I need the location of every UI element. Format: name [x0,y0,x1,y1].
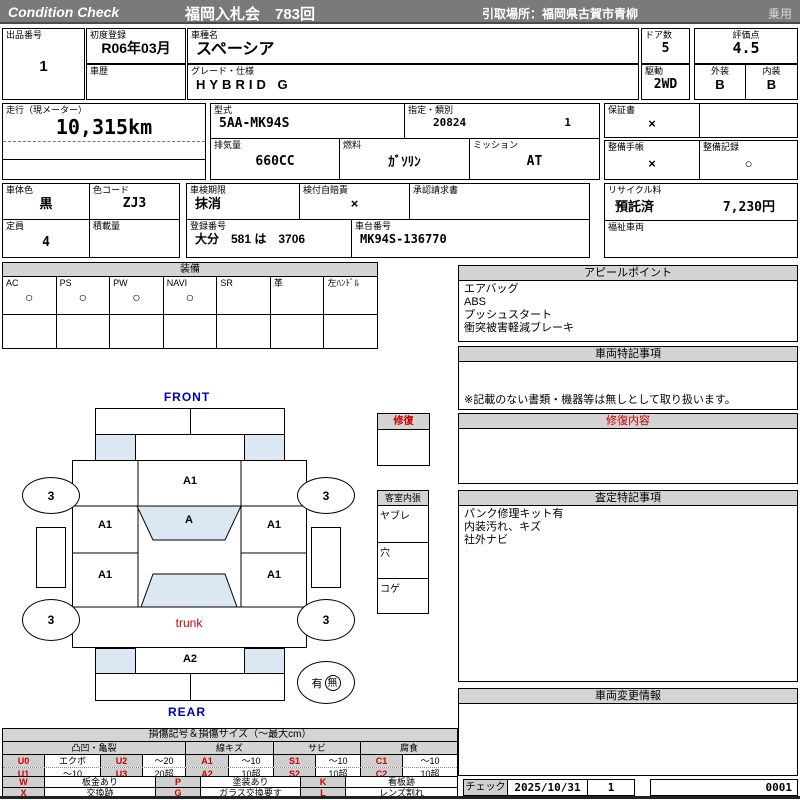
trunk-label: trunk [176,616,203,630]
capacity-label: 定員 [3,220,89,232]
appeal-line: エアバッグ [464,283,792,296]
equipment-table: 装備 AC ○ PS ○ PW ○ NAVI ○ SR 革 [2,262,378,349]
warranty-cell: 保証書 × [604,103,700,138]
exterior-grade-cell: 外装 B [694,64,746,100]
repair-content-panel: 修復内容 [458,413,798,484]
equipment-mark-navi: ○ [164,289,217,305]
chassis-number-value: MK94S-136770 [352,232,589,247]
grade-cell: グレード・仕様 HYBRID G [187,64,639,100]
rear-label: REAR [168,705,206,719]
vehicle-special-notes-title: 車両特記事項 [459,347,797,362]
score-value: 4.5 [695,41,797,56]
serial-number-cell: 0001 [650,779,798,796]
legend-desc: 看板跡 [346,777,457,787]
rear-right-wheel-mark: 3 [297,599,355,641]
equipment-cell-lhd: 左ﾊﾝﾄﾞﾙ [324,277,377,314]
appeal-line: プッシュスタート [464,309,792,322]
chassis-number-label: 車台番号 [352,220,589,232]
doors-cell: ドア数 5 [641,28,690,64]
capacity-value: 4 [3,235,89,250]
mileage-empty-row [3,142,205,160]
model-code-cell: 型式 5AA-MK94S [210,103,405,139]
front-label: FRONT [164,390,210,404]
legend-group-rust: サビ [274,742,361,754]
interior-row-tear: ヤブレ [378,506,428,542]
equipment-label-ps: PS [57,277,110,289]
rear-left-wheel-mark: 3 [22,599,80,641]
inspection-label: 車検期限 [187,184,299,196]
legend-desc: 塗装あり [201,777,301,787]
fuel-label: 燃料 [340,139,469,151]
car-body-outline: A1 A A1 A1 A1 A1 trunk [72,460,307,648]
vehicle-class: 乗用 [768,5,792,22]
maintenance-record-label: 整備記録 [700,141,797,153]
lot-number-value: 1 [3,59,84,74]
roof-mark: A [185,514,193,526]
legend-code: S1 [274,755,316,767]
class-number-cell: 指定・類別 20824 1 [404,103,600,139]
assessment-notes-content: パンク修理キット有 内装汚れ、キズ 社外ナビ [459,506,797,549]
right-side-sill-shape [311,527,341,588]
maintenance-record-cell: 整備記録 ○ [699,140,798,180]
class-number-label: 指定・類別 [405,104,599,116]
rear-bumper-divider [190,674,191,700]
welfare-vehicle-cell: 福祉車両 [604,220,798,258]
spare-no-label-circled: 無 [325,675,341,691]
warranty-value: × [605,116,699,131]
capacity-cell: 定員 4 [2,219,90,258]
left-front-door-mark: A1 [98,519,112,531]
registration-number-cell: 登録番号 大分 581 は 3706 [186,219,352,258]
check-count-cell: 1 [587,779,635,796]
interior-row-hole: 穴 [378,542,428,578]
appeal-line: ABS [464,296,792,309]
header-bar: Condition Check 福岡入札会 783回 引取場所：福岡県古賀市青柳… [0,0,800,24]
interior-row-burn: コゲ [378,578,428,614]
legend-group-scratch: 線キズ [186,742,274,754]
repair-code-row-1: W 板金あり P 塗装あり K 看板跡 [3,777,457,787]
vehicle-history-label: 車歴 [87,65,185,77]
vehicle-history-cell: 車歴 [86,64,186,100]
check-date-cell: 2025/10/31 [507,779,588,796]
assessment-notes-title: 査定特記事項 [459,491,797,506]
legend-desc: 〜20 [143,755,186,767]
insurance-label: 検付自賠責 [300,184,409,196]
body-color-label: 車体色 [3,184,89,196]
interior-grade-label: 内装 [746,65,797,77]
spare-yes-label: 有 [312,675,323,691]
class-number-values: 20824 1 [405,116,599,129]
car-damage-diagram: FRONT A1 A A1 A1 A1 A1 trunk [0,385,458,730]
first-registration-value: R06年03月 [87,41,185,56]
appeal-points-panel: アピールポイント エアバッグ ABS プッシュスタート 衝突被害軽減ブレーキ [458,265,798,342]
assessment-notes-panel: 査定特記事項 パンク修理キット有 内装汚れ、キズ 社外ナビ [458,490,798,682]
recycle-status-value: 預託済 [615,196,654,215]
assessment-line: 内装汚れ、キズ [464,521,792,534]
exterior-grade-label: 外装 [695,65,745,77]
equipment-mark-ps: ○ [57,289,110,305]
equipment-cell-ac: AC ○ [3,277,57,314]
spare-tire-indicator: 有 無 [297,661,355,704]
equipment-cell-ps: PS ○ [57,277,111,314]
lot-number-cell: 出品番号 1 [2,28,85,100]
model-name-label: 車種名 [188,29,638,41]
assessment-line: パンク修理キット有 [464,508,792,521]
exterior-grade-value: B [695,77,745,92]
equipment-label-lhd: 左ﾊﾝﾄﾞﾙ [324,277,377,289]
legend-group-dent: 凸凹・亀裂 [3,742,186,754]
pickup-location: 引取場所：福岡県古賀市青柳 [482,5,638,22]
front-bumper-shape [95,408,285,435]
interior-grade-value: B [746,77,797,92]
color-code-label: 色コード [90,184,179,196]
right-front-door-mark: A1 [267,519,281,531]
first-registration-cell: 初度登録 R06年03月 [86,28,186,64]
appeal-line: 衝突被害軽減ブレーキ [464,322,792,335]
model-name-cell: 車種名 スペーシア [187,28,639,64]
legend-code: W [3,777,45,787]
welfare-vehicle-label: 福祉車両 [605,221,797,233]
equipment-label-pw: PW [110,277,163,289]
transmission-label: ミッション [470,139,599,151]
repair-flag-title: 修復 [378,414,429,430]
assessment-line: 社外ナビ [464,534,792,547]
recycle-fee-value: 7,230円 [723,196,775,215]
legend-desc: 〜10 [229,755,274,767]
approval-request-cell: 承認請求書 [409,183,590,220]
transmission-cell: ミッション AT [469,138,600,180]
vehicle-change-info-title: 車両変更情報 [459,689,797,704]
check-label-cell: チェック [463,779,508,796]
maintenance-book-label: 整備手帳 [605,141,699,153]
registration-number-value: 大分 581 は 3706 [187,232,351,247]
fuel-value: ｶﾞｿﾘﾝ [340,154,469,169]
equipment-label-leather: 革 [271,277,324,289]
drive-cell: 駆動 2WD [641,64,690,100]
score-cell: 評価点 4.5 [694,28,798,64]
maintenance-book-value: × [605,156,699,171]
body-color-cell: 車体色 黒 [2,183,90,220]
front-right-wheel-mark: 3 [297,477,355,514]
equipment-cell-pw: PW ○ [110,277,164,314]
doors-value: 5 [642,41,689,56]
equipment-label-navi: NAVI [164,277,217,289]
page-bottom-rule [0,796,800,799]
insurance-value: × [300,196,409,211]
legend-desc: 〜10 [403,755,457,767]
color-code-cell: 色コード ZJ3 [89,183,180,220]
legend-desc: エクボ [45,755,101,767]
load-capacity-cell: 積載量 [89,219,180,258]
legend-code: P [156,777,201,787]
drive-value: 2WD [642,77,689,92]
equipment-label-ac: AC [3,277,56,289]
legend-group-corrosion: 腐食 [361,742,457,754]
recycle-fee-cell: リサイクル料 預託済 7,230円 [604,183,798,221]
damage-legend-groups: 凸凹・亀裂 線キズ サビ 腐食 [3,742,457,755]
drive-label: 駆動 [642,65,689,77]
front-left-corner-shape [95,434,136,461]
model-code-value: 5AA-MK94S [211,116,404,131]
load-capacity-label: 積載量 [90,220,179,232]
rear-left-corner-shape [95,648,136,674]
vehicle-change-info-panel: 車両変更情報 [458,688,798,776]
equipment-empty-row [3,314,377,348]
damage-legend-row-1: U0 エクボ U2 〜20 A1 〜10 S1 〜10 C1 〜10 [3,755,457,767]
grade-value: HYBRID G [188,77,638,92]
vehicle-special-notes-panel: 車両特記事項 ※記載のない書類・機器等は無しとして取り扱います。 [458,346,798,410]
equipment-label-sr: SR [217,277,270,289]
grade-label: グレード・仕様 [188,65,638,77]
cabin-interior-box: 客室内張 ヤブレ 穴 コゲ [377,490,429,614]
displacement-cell: 排気量 660CC [210,138,340,180]
warranty-extra-cell [699,103,798,138]
recycle-fee-label: リサイクル料 [605,184,797,196]
front-right-corner-shape [244,434,285,461]
appeal-points-content: エアバッグ ABS プッシュスタート 衝突被害軽減ブレーキ [459,281,797,337]
front-bumper-divider [190,409,191,434]
model-code-label: 型式 [211,104,404,116]
rear-panel-mark: A2 [183,653,197,665]
class-number-value-1: 20824 [433,116,466,129]
model-name-value: スペーシア [188,41,638,59]
equipment-cell-sr: SR [217,277,271,314]
equipment-title: 装備 [3,263,377,277]
displacement-value: 660CC [211,154,339,169]
inspection-value: 抹消 [187,196,299,211]
windshield-mark: A1 [183,475,197,487]
transmission-value: AT [470,154,599,169]
appeal-points-title: アピールポイント [459,266,797,281]
approval-request-label: 承認請求書 [410,184,589,196]
rear-right-corner-shape [244,648,285,674]
equipment-cell-leather: 革 [271,277,325,314]
equipment-mark-ac: ○ [3,289,56,305]
legend-code: U2 [101,755,143,767]
left-side-sill-shape [36,527,66,588]
legend-code: A1 [186,755,229,767]
repair-content-title: 修復内容 [459,414,797,429]
legend-desc: 板金あり [45,777,156,787]
displacement-label: 排気量 [211,139,339,151]
rear-bumper-shape [95,673,285,701]
mileage-cell: 走行（現メーター） 10,315km [2,103,206,180]
mileage-value: 10,315km [3,116,205,142]
brand-logo: Condition Check [8,4,119,20]
equipment-cell-navi: NAVI ○ [164,277,218,314]
right-rear-door-mark: A1 [267,569,281,581]
maintenance-record-value: ○ [700,156,797,171]
legend-code: C1 [361,755,403,767]
chassis-number-cell: 車台番号 MK94S-136770 [351,219,590,258]
insurance-cell: 検付自賠責 × [299,183,410,220]
lot-number-label: 出品番号 [3,29,84,41]
front-left-wheel-mark: 3 [22,477,80,514]
body-color-value: 黒 [3,196,89,211]
color-code-value: ZJ3 [90,196,179,211]
recycle-fee-values: 預託済 7,230円 [605,196,797,215]
inspection-cell: 車検期限 抹消 [186,183,300,220]
legend-code: U0 [3,755,45,767]
registration-number-label: 登録番号 [187,220,351,232]
fuel-cell: 燃料 ｶﾞｿﾘﾝ [339,138,470,180]
maintenance-book-cell: 整備手帳 × [604,140,700,180]
repair-flag-box: 修復 [377,413,430,466]
doors-label: ドア数 [642,29,689,41]
left-rear-door-mark: A1 [98,569,112,581]
damage-legend-table: 損傷記号＆損傷サイズ（〜最大cm） 凸凹・亀裂 線キズ サビ 腐食 U0 エクボ… [2,728,458,781]
legend-desc: 〜10 [316,755,361,767]
vehicle-special-note: ※記載のない書類・機器等は無しとして取り扱います。 [464,391,736,407]
equipment-mark-pw: ○ [110,289,163,305]
class-number-value-2: 1 [564,116,571,129]
damage-legend-title: 損傷記号＆損傷サイズ（〜最大cm） [3,729,457,742]
interior-grade-cell: 内装 B [745,64,798,100]
rear-window-shape [141,574,237,607]
equipment-row: AC ○ PS ○ PW ○ NAVI ○ SR 革 [3,277,377,314]
warranty-label: 保証書 [605,104,699,116]
condition-check-sheet: Condition Check 福岡入札会 783回 引取場所：福岡県古賀市青柳… [0,0,800,800]
legend-code: K [301,777,346,787]
auction-title: 福岡入札会 783回 [185,3,315,24]
cabin-interior-title: 客室内張 [378,491,428,506]
